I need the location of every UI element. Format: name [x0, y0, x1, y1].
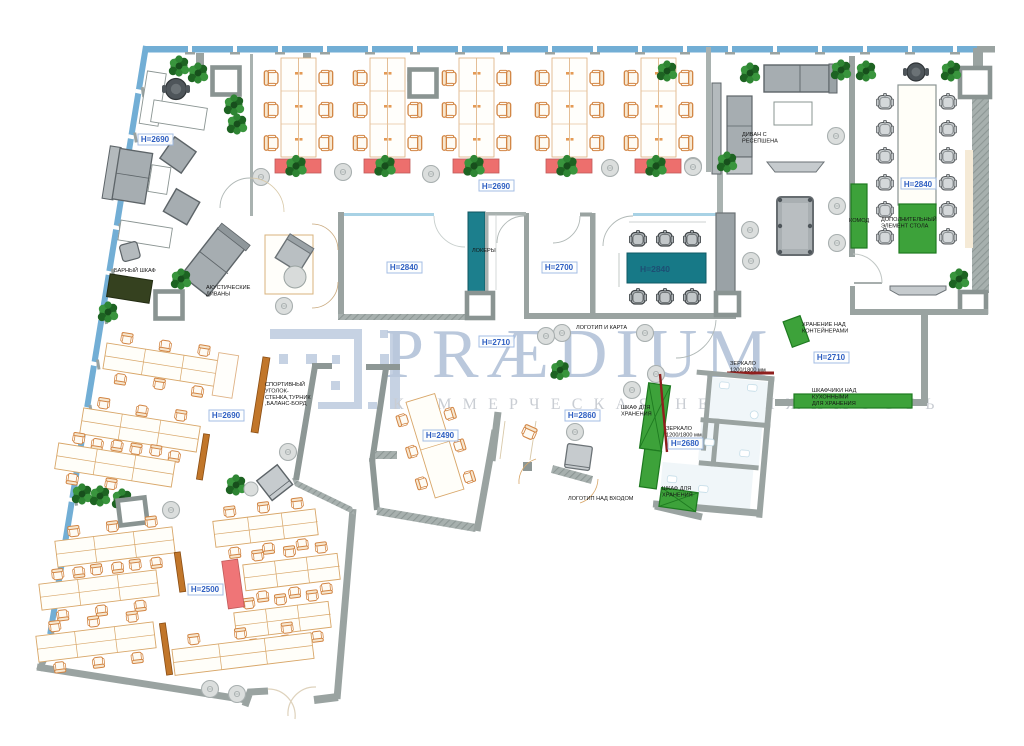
- svg-text:ХРАНЕНИЯ: ХРАНЕНИЯ: [621, 411, 652, 417]
- svg-text:ДИВАН С: ДИВАН С: [742, 132, 767, 138]
- svg-text:,БАЛАНС-БОРД: ,БАЛАНС-БОРД: [265, 401, 307, 407]
- svg-text:ЛОКЕРЫ: ЛОКЕРЫ: [472, 248, 496, 254]
- svg-text:АКУСТИЧЕСКИЕ: АКУСТИЧЕСКИЕ: [206, 285, 251, 291]
- svg-text:ДИВАНЫ: ДИВАНЫ: [206, 291, 230, 297]
- svg-text:УГОЛОК-: УГОЛОК-: [265, 388, 289, 394]
- svg-text:H=2860: H=2860: [568, 411, 597, 420]
- svg-text:H=2490: H=2490: [426, 431, 455, 440]
- svg-text:РЕСЕПШЕНА: РЕСЕПШЕНА: [742, 138, 778, 144]
- svg-text:ЗЕРКАЛО: ЗЕРКАЛО: [730, 361, 757, 367]
- svg-text:КУХОННЫМИ: КУХОННЫМИ: [812, 394, 848, 400]
- svg-text:H=2690: H=2690: [141, 135, 170, 144]
- svg-text:ЗЕРКАЛО: ЗЕРКАЛО: [666, 426, 693, 432]
- svg-text:СПОРТИВНЫЙ: СПОРТИВНЫЙ: [265, 380, 305, 388]
- svg-text:ШКАФ ДЛЯ: ШКАФ ДЛЯ: [662, 486, 691, 492]
- svg-text:H=2710: H=2710: [817, 353, 846, 362]
- svg-text:H=2690: H=2690: [212, 411, 241, 420]
- svg-text:ДОПОЛНИТЕЛЬНЫЙ: ДОПОЛНИТЕЛЬНЫЙ: [881, 215, 937, 223]
- svg-text:H=2690: H=2690: [482, 182, 511, 191]
- svg-text:ДЛЯ ХРАНЕНИЯ: ДЛЯ ХРАНЕНИЯ: [812, 401, 856, 407]
- svg-text:КОНТЕЙНЕРАМИ: КОНТЕЙНЕРАМИ: [802, 326, 848, 334]
- svg-text:H=2840: H=2840: [640, 264, 670, 274]
- svg-text:ХРАНЕНИЯ: ХРАНЕНИЯ: [662, 492, 693, 498]
- svg-text:H=2680: H=2680: [671, 439, 700, 448]
- svg-text:ХРАНЕНИЕ НАД: ХРАНЕНИЕ НАД: [802, 322, 846, 328]
- svg-text:1200/1800 мм: 1200/1800 мм: [730, 367, 766, 373]
- svg-text:ЛОГОТИП И КАРТА: ЛОГОТИП И КАРТА: [576, 325, 627, 331]
- svg-text:H=2710: H=2710: [482, 338, 511, 347]
- svg-text:H=2840: H=2840: [904, 180, 933, 189]
- svg-text:ШКАФ ДЛЯ: ШКАФ ДЛЯ: [621, 405, 650, 411]
- svg-text:1200/1800 мм: 1200/1800 мм: [666, 432, 702, 438]
- svg-text:СТЕНКА,ТУРНИК: СТЕНКА,ТУРНИК: [265, 395, 311, 401]
- svg-text:ЛОГОТИП НАД ВХОДОМ: ЛОГОТИП НАД ВХОДОМ: [568, 496, 634, 502]
- svg-text:ШКАФЧИКИ НАД: ШКАФЧИКИ НАД: [812, 388, 857, 394]
- svg-text:ЭЛЕМЕНТ СТОЛА: ЭЛЕМЕНТ СТОЛА: [881, 223, 929, 229]
- svg-text:БАРНЫЙ ШКАФ: БАРНЫЙ ШКАФ: [114, 266, 156, 274]
- svg-text:H=2840: H=2840: [390, 263, 419, 272]
- svg-text:H=2500: H=2500: [191, 585, 220, 594]
- svg-text:H=2700: H=2700: [545, 263, 574, 272]
- svg-text:КОМОД: КОМОД: [849, 218, 869, 224]
